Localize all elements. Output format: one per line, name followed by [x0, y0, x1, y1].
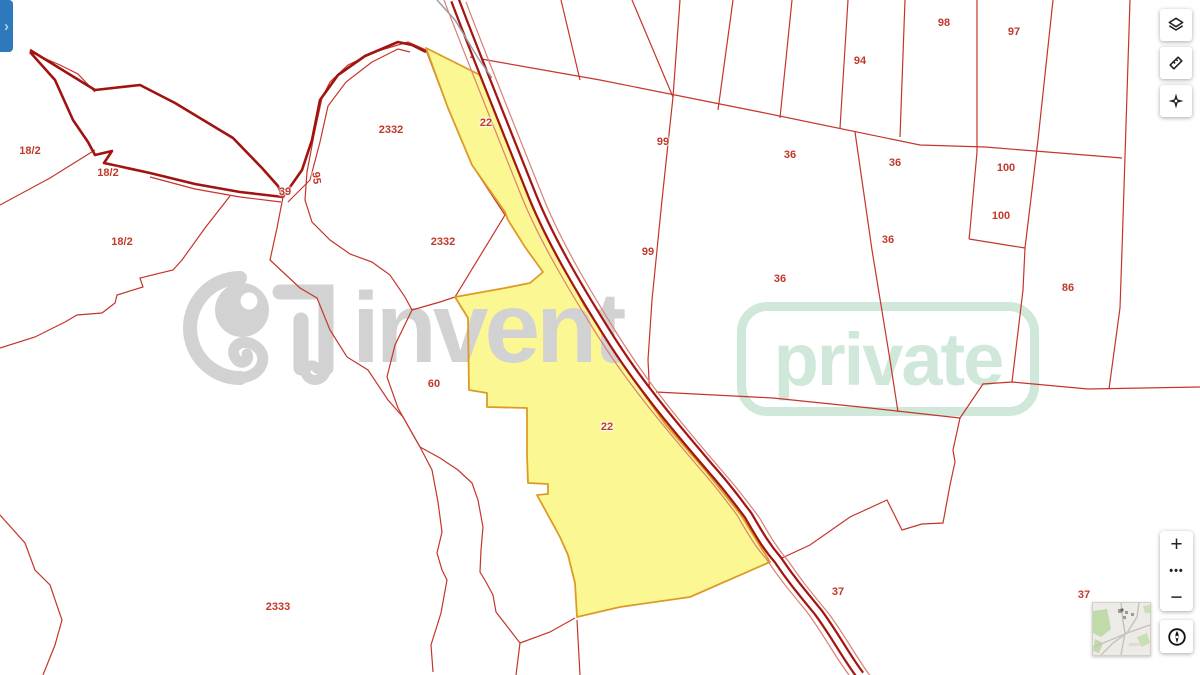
parcel-label: 98 [938, 17, 950, 29]
parcel-label: 100 [992, 210, 1010, 222]
side-panel-toggle[interactable]: › [0, 0, 13, 52]
parcel-label: 95 [309, 171, 322, 185]
parcel-label: 37 [832, 586, 844, 598]
parcel-label: 36 [889, 157, 901, 169]
parcel-label: 97 [1008, 26, 1020, 38]
zoom-control: + ••• − [1160, 531, 1193, 611]
parcel-label: 2333 [266, 601, 290, 613]
parcel-label: 2332 [431, 236, 455, 248]
parcel-label: 94 [854, 55, 866, 67]
zoom-in-button[interactable]: + [1160, 531, 1193, 558]
parcel-label: 36 [774, 273, 786, 285]
parcel-label: 99 [657, 136, 669, 148]
parcel-label: 99 [642, 246, 654, 258]
parcel-label: 22 [480, 117, 492, 129]
zoom-more-button[interactable]: ••• [1160, 558, 1193, 585]
overview-minimap[interactable] [1092, 602, 1151, 656]
parcel-label: 18/2 [111, 236, 132, 248]
chevron-right-icon: › [4, 18, 9, 35]
compass-button[interactable] [1160, 620, 1193, 653]
center-target-icon [1166, 91, 1186, 111]
measure-button[interactable] [1160, 47, 1192, 79]
parcel-label: 18/2 [19, 145, 40, 157]
parcel-label: 22 [601, 421, 613, 433]
minimap-thumbnail-image [1093, 603, 1150, 655]
parcel-label: 37 [1078, 589, 1090, 601]
parcel-label: 86 [1062, 282, 1074, 294]
map-canvas[interactable]: invent private [0, 0, 1200, 675]
parcel-label: 100 [997, 162, 1015, 174]
parcel-label: 60 [428, 378, 440, 390]
layers-icon [1166, 15, 1186, 35]
parcel-linework [0, 0, 1200, 675]
parcel-label: 2332 [379, 124, 403, 136]
parcel-label: 18/2 [97, 167, 118, 179]
compass-north-icon [1166, 626, 1188, 648]
measure-ruler-icon [1166, 53, 1186, 73]
layers-button[interactable] [1160, 9, 1192, 41]
parcel-label: 36 [784, 149, 796, 161]
zoom-out-button[interactable]: − [1160, 584, 1193, 611]
center-map-button[interactable] [1160, 85, 1192, 117]
road [444, 0, 871, 675]
parcel-label: 39 [279, 186, 291, 198]
parcel-label: 36 [882, 234, 894, 246]
